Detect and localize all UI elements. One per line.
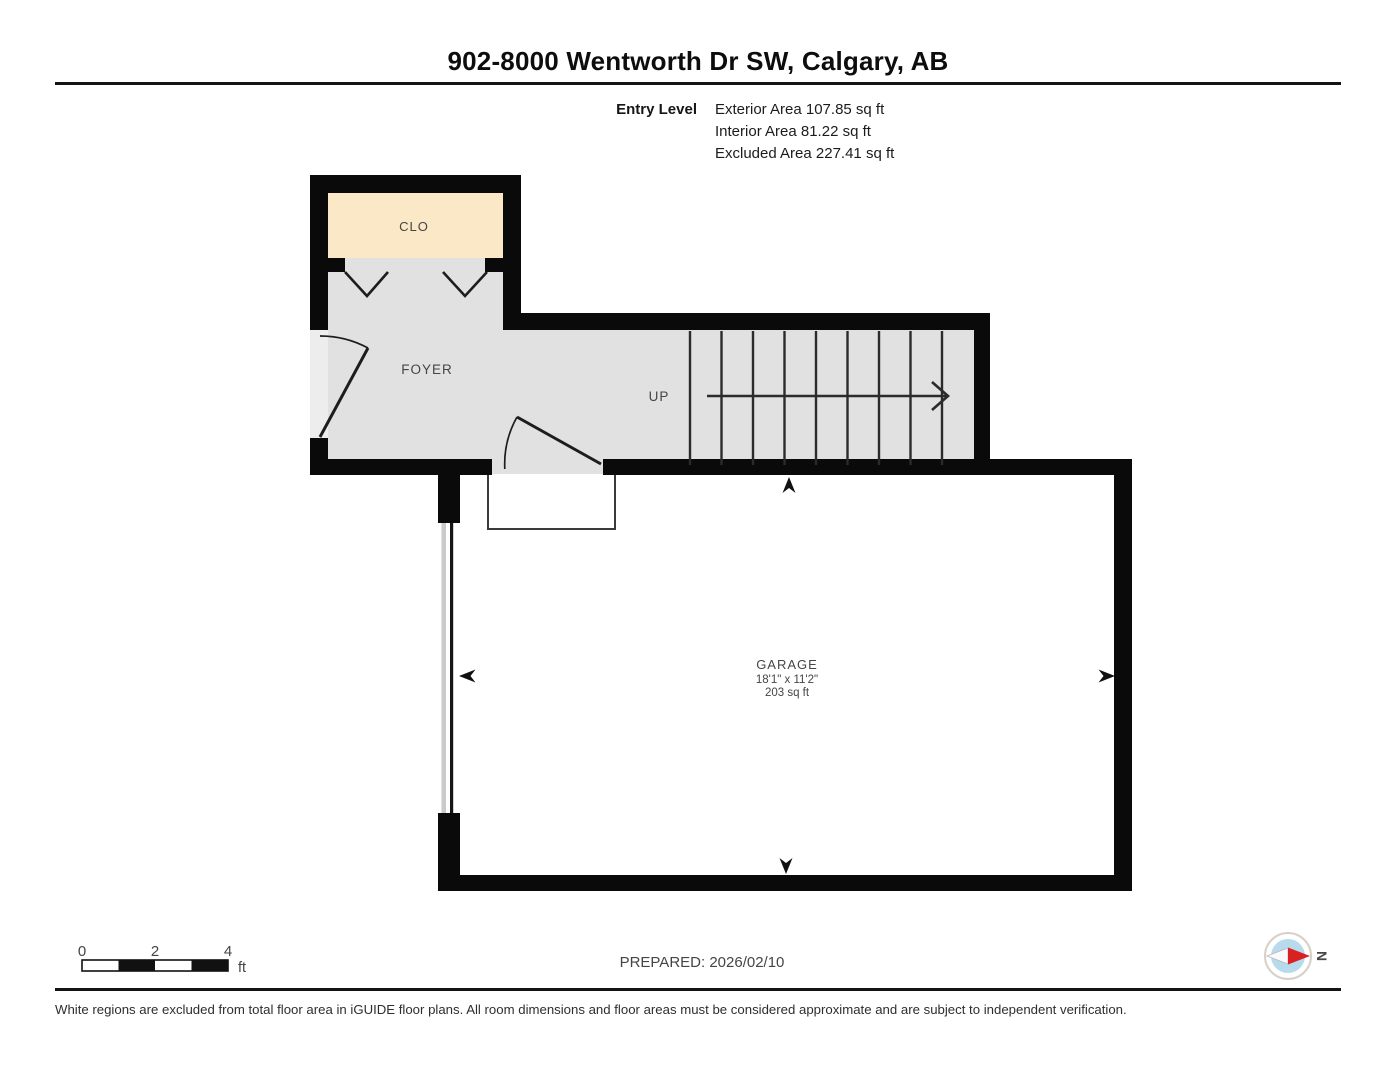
bottom-wall-foyer-segment [310,459,492,475]
garage-door-outer-line [442,523,447,813]
stair-right-wall [974,313,990,475]
stair-corridor-floor [503,330,974,466]
scale-bar-segment [192,960,229,971]
stair-top-wall [503,313,990,330]
scale-tick-4: 4 [224,943,232,960]
entry-doorway-floor [310,330,328,438]
marker-arrow-left-icon [459,670,476,683]
stairs-up-label: UP [649,389,670,404]
compass-north-label: N [1314,951,1330,961]
compass-icon: N [1265,933,1330,979]
marker-arrow-up-icon [783,477,796,493]
scale-tick-2: 2 [151,943,159,960]
closet-jamb-left [328,258,345,272]
garage-area: 203 sq ft [765,687,810,699]
garage-right-wall [1114,459,1132,891]
garage-bottom-wall [438,875,1132,891]
foyer-label: FOYER [401,362,453,377]
floor-plan-page: 902-8000 Wentworth Dr SW, Calgary, AB En… [0,0,1396,1080]
garage-doorway-floor [492,459,603,475]
marker-arrow-right-icon [1099,670,1116,683]
closet-jamb-right [485,258,503,272]
scale-bar: 0 2 4 ft [78,943,246,976]
entry-landing-step [488,474,615,529]
closet-right-wall [503,175,521,330]
disclaimer-text: White regions are excluded from total fl… [55,1002,1355,1017]
scale-tick-0: 0 [78,943,86,960]
left-wall-upper [310,175,328,330]
footer-divider [55,988,1341,991]
prepared-date: PREPARED: 2026/02/10 [620,954,785,971]
closet-label: CLO [399,219,429,234]
scale-unit-label: ft [238,960,246,976]
closet-top-wall [310,175,521,193]
floor-plan-svg: CLO FOYER UP GARAGE 18'1" x 11'2" 203 sq… [0,0,1396,1080]
marker-arrow-down-icon [780,858,793,874]
garage-door [442,523,454,813]
bottom-wall-stairs-garage-segment [603,459,1132,475]
garage-label: GARAGE [756,657,818,672]
garage-dimensions: 18'1" x 11'2" [756,674,818,686]
garage-left-wall-top-stub [438,475,460,523]
scale-bar-segment [119,960,156,971]
garage-door-inner-line [450,523,453,813]
